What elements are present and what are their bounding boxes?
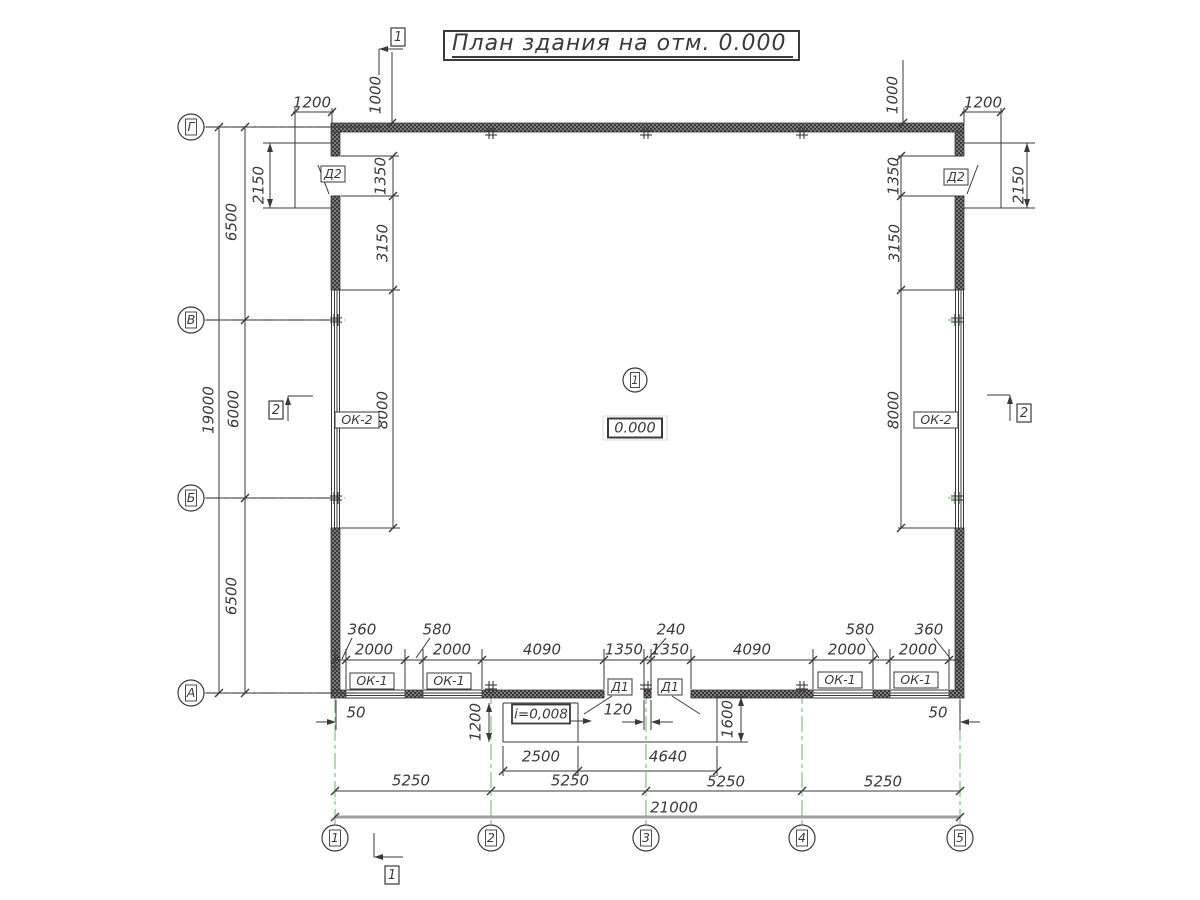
window-tag: ОК-1 bbox=[356, 673, 387, 688]
dimension-label: 240 bbox=[657, 621, 686, 639]
wall bbox=[405, 690, 423, 698]
dimension-label: 1000 bbox=[884, 76, 902, 114]
dimension-label: 2500 bbox=[522, 748, 560, 766]
dimension-label: 360 bbox=[348, 621, 377, 639]
wall bbox=[955, 196, 964, 290]
dimension-label: 50 bbox=[928, 704, 947, 722]
dimension-label: 6500 bbox=[223, 203, 241, 241]
dimension-label: 120 bbox=[604, 701, 633, 719]
dim-arrow bbox=[285, 396, 291, 405]
dimension-label: 2000 bbox=[355, 641, 393, 659]
dimension-label: 1350 bbox=[885, 157, 903, 195]
dimension-label: 5250 bbox=[392, 772, 430, 790]
dimension-label: 1200 bbox=[467, 703, 485, 741]
axis-label: В bbox=[187, 312, 196, 327]
dim-arrow bbox=[651, 719, 660, 725]
dimension-label: 580 bbox=[846, 621, 875, 639]
dimension-label: 6000 bbox=[225, 390, 243, 428]
dimension-label: 2000 bbox=[828, 641, 866, 659]
dimension-label: 1350 bbox=[605, 641, 643, 659]
dimension-label: 8000 bbox=[885, 391, 903, 429]
wall bbox=[955, 132, 964, 156]
dim-arrow bbox=[1024, 143, 1030, 152]
axis-label: Б bbox=[187, 490, 196, 505]
axis-label: 1 bbox=[331, 830, 339, 845]
floor-plan-canvas: 1200100010001200215021501350315080001350… bbox=[0, 0, 1200, 900]
section-marker-label: 1 bbox=[394, 30, 402, 45]
section-marker-label: 2 bbox=[1020, 406, 1028, 421]
leader-line bbox=[672, 696, 700, 714]
drawing-title-box: План здания на отм. 0.000 bbox=[443, 30, 800, 61]
dimension-label: 3150 bbox=[374, 224, 392, 262]
section-marker-label: 2 bbox=[272, 403, 280, 418]
dimension-label: 4090 bbox=[523, 641, 561, 659]
door-leaf bbox=[967, 165, 978, 194]
axis-label: Г bbox=[188, 119, 196, 134]
dim-arrow bbox=[267, 199, 273, 208]
dim-arrow bbox=[486, 703, 492, 712]
dim-arrow bbox=[960, 719, 969, 725]
window-tag: ОК-1 bbox=[824, 672, 855, 687]
axis-label: А bbox=[186, 685, 196, 700]
dim-arrow bbox=[738, 733, 744, 742]
dimension-label: 3150 bbox=[886, 224, 904, 262]
door-tag: Д2 bbox=[946, 169, 965, 184]
dimension-label: 5250 bbox=[551, 772, 589, 790]
dimension-label: 2150 bbox=[250, 166, 268, 204]
dimension-label: 5250 bbox=[707, 773, 745, 791]
drawing-title: План здания на отм. 0.000 bbox=[452, 31, 793, 58]
window-tag: ОК-1 bbox=[433, 673, 464, 688]
dim-arrow bbox=[635, 719, 644, 725]
wall bbox=[331, 196, 340, 290]
dimension-label: 360 bbox=[915, 621, 944, 639]
dimension-label: 2000 bbox=[899, 641, 937, 659]
door-tag: Д1 bbox=[610, 679, 629, 694]
dimension-label: 1200 bbox=[964, 94, 1002, 112]
dimension-label: 2000 bbox=[433, 641, 471, 659]
axis-label: 5 bbox=[956, 830, 964, 845]
dim-arrow bbox=[379, 46, 388, 52]
wall bbox=[331, 690, 346, 698]
door-tag: Д1 bbox=[660, 679, 679, 694]
wall bbox=[949, 690, 964, 698]
dimension-label: 4090 bbox=[733, 641, 771, 659]
elevation-label: 0.000 bbox=[614, 421, 656, 437]
dimension-label: 4640 bbox=[649, 748, 687, 766]
axis-label: 4 bbox=[798, 830, 806, 845]
wall bbox=[482, 690, 604, 698]
dimension-label: 21000 bbox=[650, 799, 698, 817]
wall bbox=[873, 690, 890, 698]
dimension-label: 5250 bbox=[864, 773, 902, 791]
door-tag: Д2 bbox=[323, 166, 342, 181]
wall bbox=[691, 690, 813, 698]
window-tag: ОК-2 bbox=[920, 412, 951, 427]
axis-label: 3 bbox=[642, 830, 650, 845]
dim-arrow bbox=[267, 143, 273, 152]
floor-plan-drawing: 1200100010001200215021501350315080001350… bbox=[0, 0, 1200, 900]
slope-label: i=0,008 bbox=[514, 707, 568, 723]
dimension-label: 19000 bbox=[200, 386, 218, 434]
dimension-label: 1200 bbox=[293, 94, 331, 112]
dim-arrow bbox=[583, 718, 592, 724]
dim-arrow bbox=[1007, 395, 1013, 404]
dimension-label: 1350 bbox=[372, 157, 390, 195]
leader-line bbox=[342, 638, 352, 659]
dimension-label: 6500 bbox=[223, 577, 241, 615]
axis-label: 2 bbox=[487, 830, 495, 845]
dimension-label: 2150 bbox=[1010, 166, 1028, 204]
window-tag: ОК-2 bbox=[341, 412, 372, 427]
dimension-label: 580 bbox=[423, 621, 452, 639]
dim-arrow bbox=[374, 854, 383, 860]
dimension-label: 50 bbox=[346, 704, 365, 722]
dimension-label: 1000 bbox=[367, 76, 385, 114]
window-tag: ОК-1 bbox=[900, 672, 931, 687]
room-number: 1 bbox=[631, 373, 638, 387]
section-marker-label: 1 bbox=[388, 868, 396, 883]
wall bbox=[331, 132, 340, 156]
dimension-label: 1600 bbox=[719, 700, 737, 738]
dimension-label: 1350 bbox=[651, 641, 689, 659]
